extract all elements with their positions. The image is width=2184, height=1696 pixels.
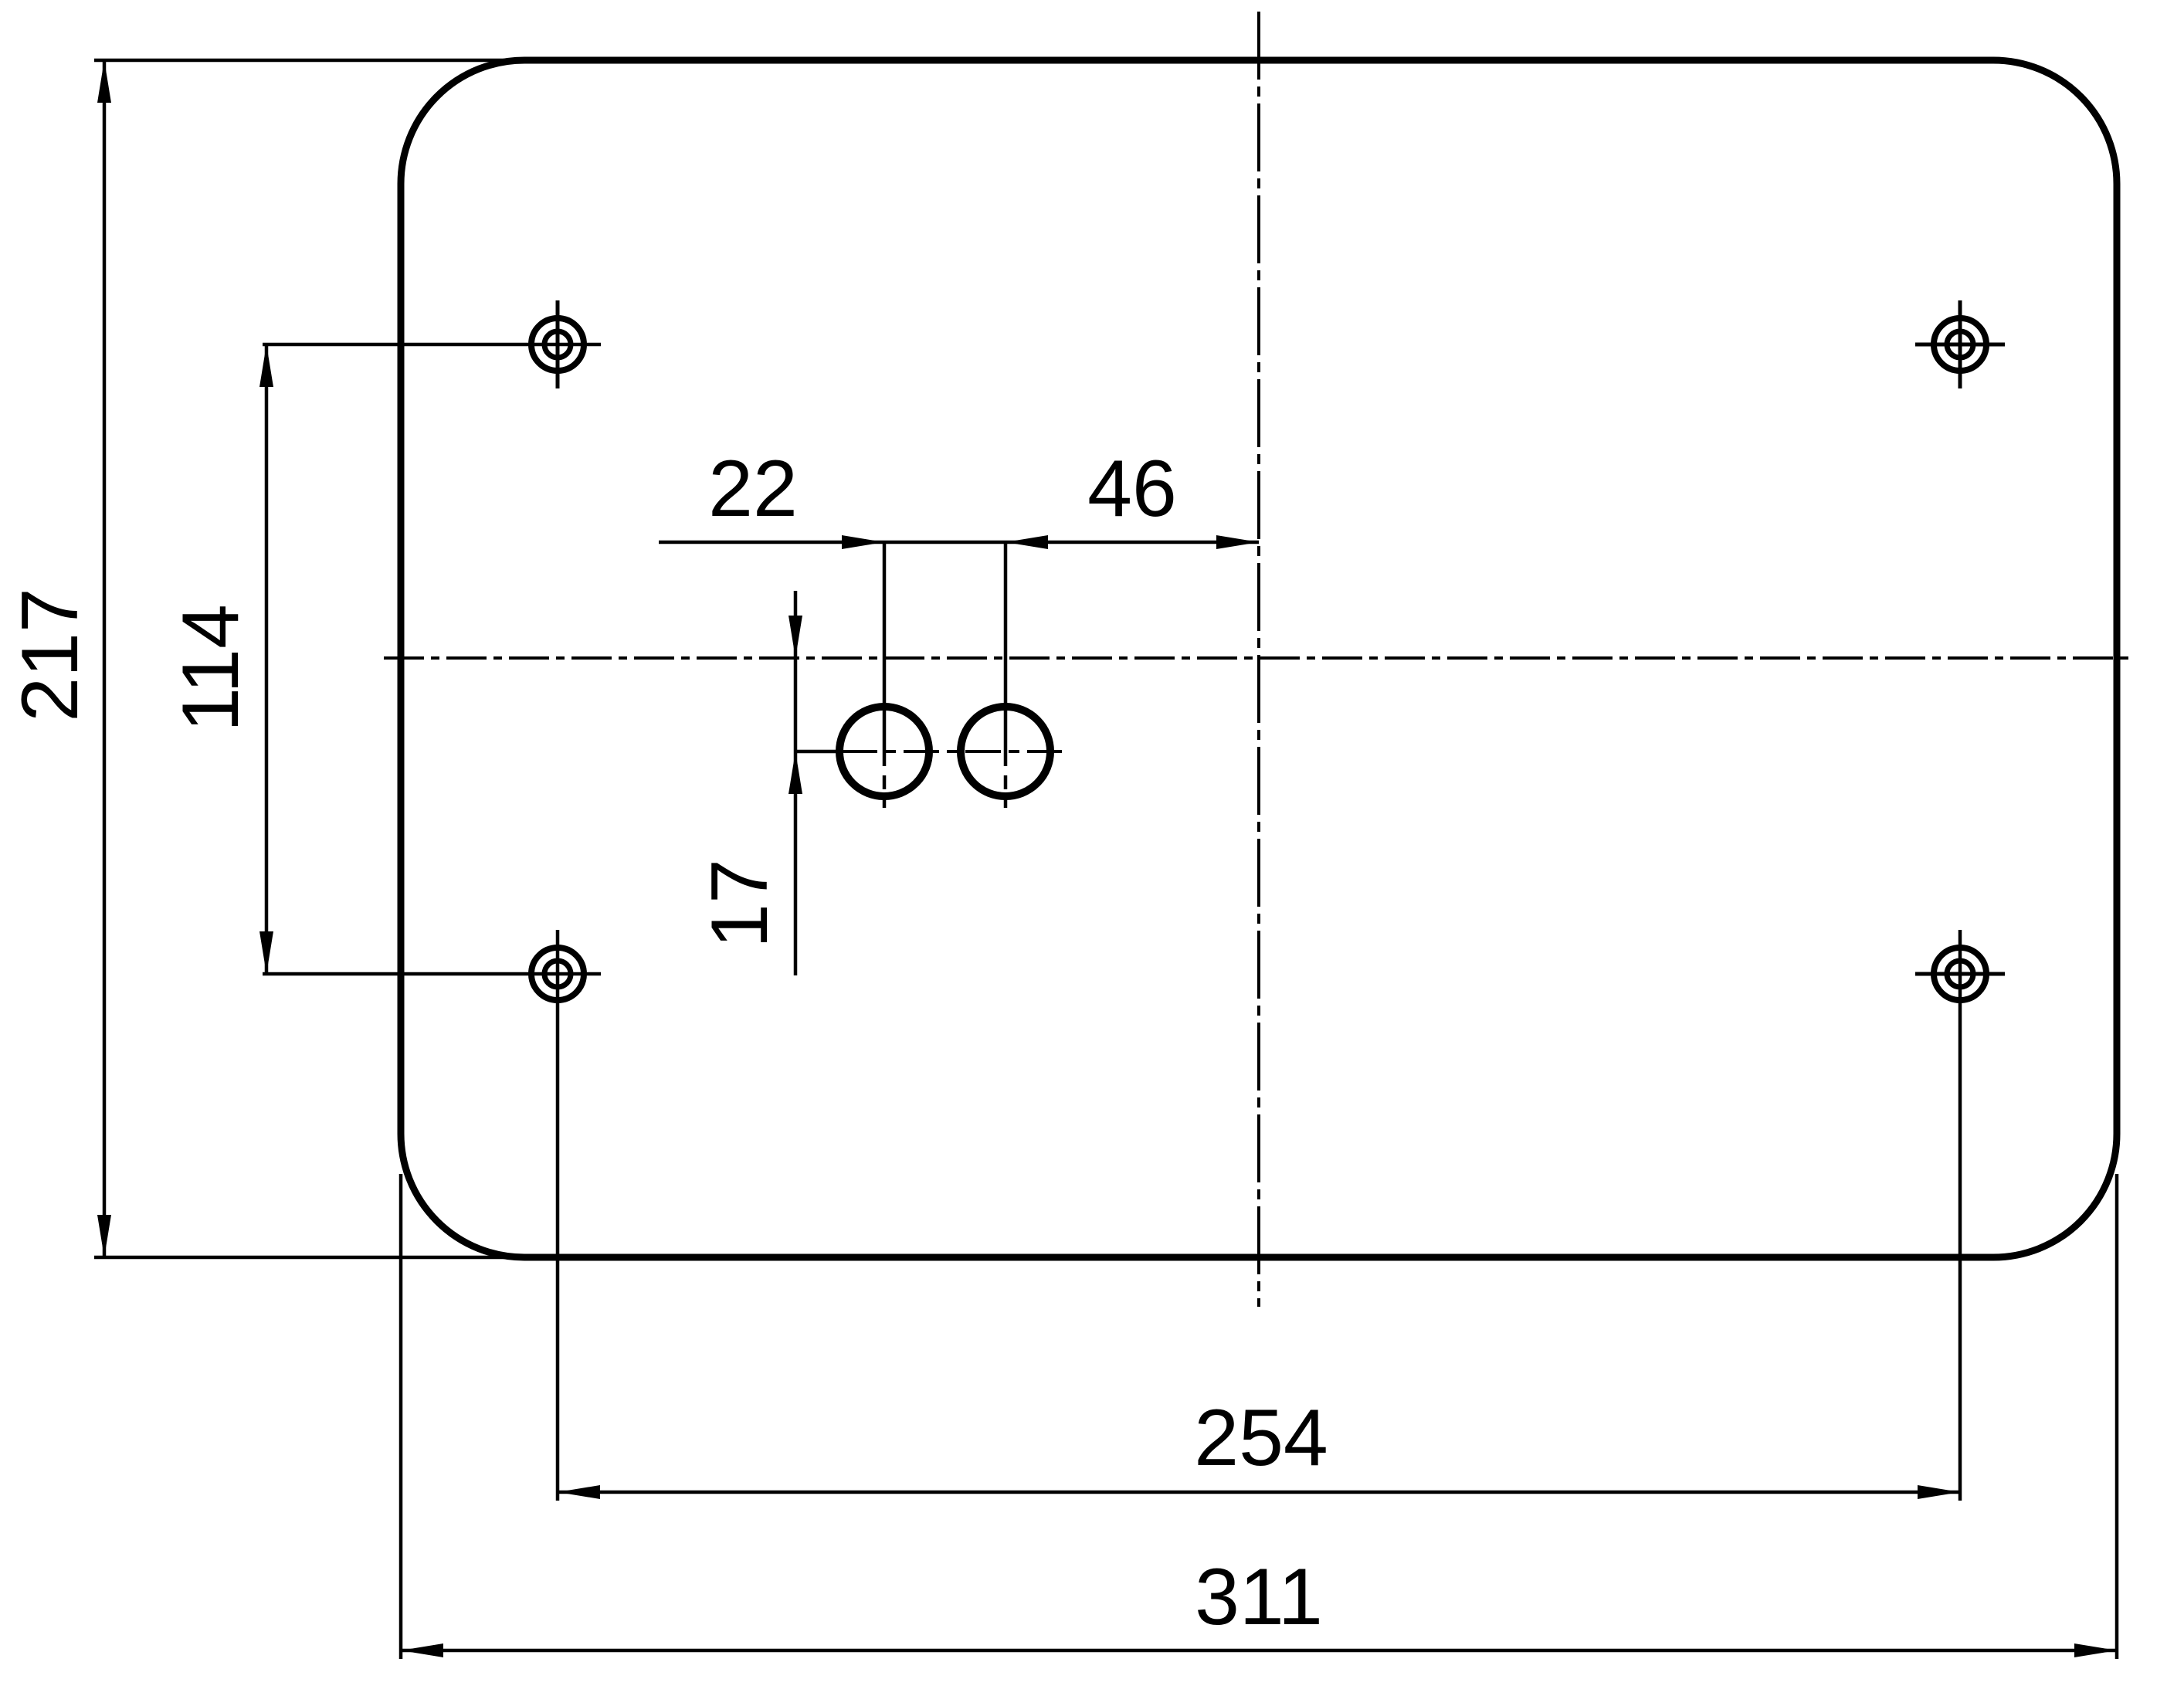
arrowhead-right-icon	[842, 535, 884, 549]
arrowhead-up-icon	[788, 751, 802, 794]
dimension-left-hole-spacing: 114	[166, 344, 273, 974]
arrowhead-down-icon	[97, 1215, 111, 1257]
arrowhead-up-icon	[259, 344, 273, 387]
arrowhead-left-icon	[401, 1643, 443, 1657]
dimension-label-311: 311	[1195, 1552, 1323, 1642]
corner-hole-bottom-right	[1915, 930, 2005, 1501]
arrowhead-right-icon	[1918, 1485, 1960, 1499]
dimension-slot-below-centerline: 17	[695, 591, 843, 975]
dimension-label-254: 254	[1194, 1393, 1328, 1483]
dimension-label-217: 217	[5, 588, 95, 722]
dimension-slot-spacing-and-offset: 22 46	[659, 444, 1259, 549]
center-hole-right	[961, 542, 1050, 808]
arrowhead-down-icon	[259, 931, 273, 974]
dimension-label-22: 22	[708, 444, 798, 534]
arrowhead-right-icon	[1216, 535, 1259, 549]
dimension-label-46: 46	[1087, 444, 1177, 534]
arrowhead-left-icon	[1006, 535, 1048, 549]
dimension-label-17: 17	[695, 859, 785, 948]
dimension-label-114: 114	[166, 604, 256, 732]
arrowhead-right-icon	[2074, 1643, 2117, 1657]
arrowhead-left-icon	[558, 1485, 600, 1499]
dimension-bottom-hole-spacing: 254	[558, 1393, 1960, 1499]
center-hole-left	[839, 542, 929, 808]
arrowhead-up-icon	[97, 60, 111, 103]
arrowhead-down-icon	[788, 616, 802, 658]
corner-hole-top-left	[263, 300, 601, 388]
corner-hole-top-right	[1915, 300, 2005, 388]
technical-drawing-canvas: 217 114 22 46 17 254 311	[0, 0, 2184, 1696]
